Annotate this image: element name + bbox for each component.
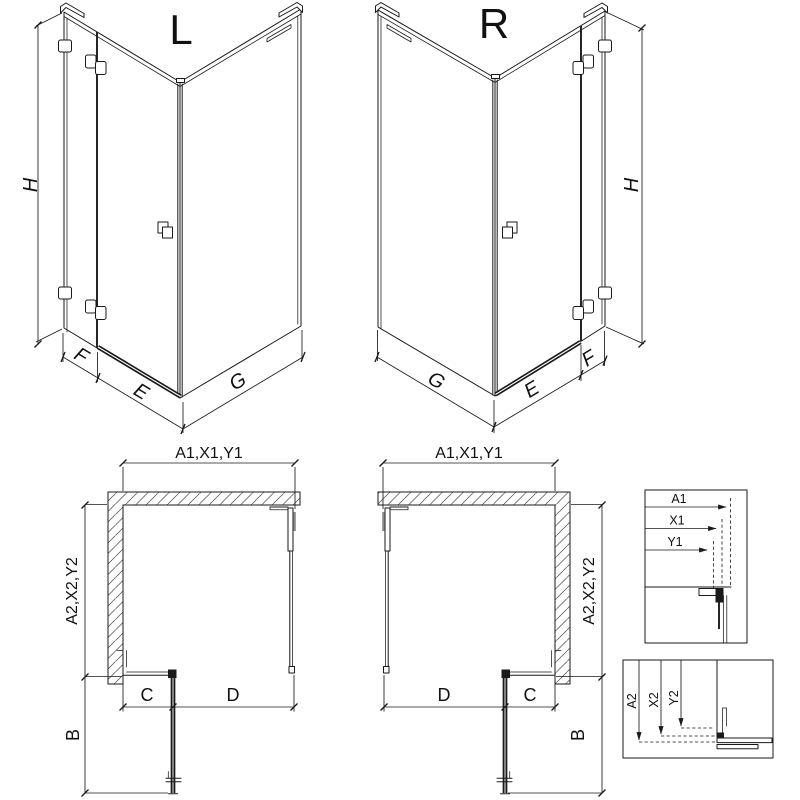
dim-h-left: H xyxy=(20,13,62,348)
wall-profile-top-right xyxy=(584,3,608,18)
detail-box-border xyxy=(645,490,747,643)
door-swing-section xyxy=(166,670,181,794)
dim-g-left: G xyxy=(183,330,305,429)
side-glass-panel xyxy=(378,10,495,396)
dim-b-right-label: B xyxy=(568,729,588,741)
dim-e-left: E xyxy=(98,378,185,434)
variant-label-right: R xyxy=(479,0,509,47)
dim-h-left-label: H xyxy=(20,177,42,192)
dim-a1-chain-right-label: A1,X1,Y1 xyxy=(435,445,503,462)
side-glass-section xyxy=(270,507,295,673)
dim-a1-label: A1 xyxy=(671,492,686,506)
side-glass-section xyxy=(383,507,408,673)
wall-hatch xyxy=(378,492,570,684)
dim-x1-arrow: X1 xyxy=(645,514,722,588)
plan-right-view: A1,X1,Y1 A2,X2,Y2 D C B xyxy=(378,445,606,797)
dim-f-left-label: F xyxy=(70,343,93,369)
dim-f-right-label: F xyxy=(578,345,601,371)
dim-f-right: F xyxy=(578,331,607,381)
wall-brackets xyxy=(59,40,72,299)
dim-d-right-label: D xyxy=(438,685,451,705)
dim-a2-chain-left-label: A2,X2,Y2 xyxy=(64,557,81,625)
dim-x2-label: X2 xyxy=(647,692,661,707)
dim-e-right: E xyxy=(492,375,581,433)
glass-end-block xyxy=(289,667,295,674)
plan-left-view: A1,X1,Y1 A2,X2,Y2 C D B xyxy=(63,445,300,797)
dim-a2-chain-right-label: A2,X2,Y2 xyxy=(581,557,598,625)
door-swing-section xyxy=(497,670,512,794)
dim-a2-label: A2 xyxy=(625,693,639,708)
dim-a1-arrow: A1 xyxy=(645,492,731,587)
dim-c-d-left: C D xyxy=(120,675,298,712)
shower-enclosure-technical-drawing: L xyxy=(0,0,800,800)
dim-b-left-label: B xyxy=(63,729,83,741)
dim-a1-chain-left-label: A1,X1,Y1 xyxy=(175,445,243,462)
dim-c-right-label: C xyxy=(524,685,537,705)
wall-hatch xyxy=(108,492,300,684)
dim-y2-label: Y2 xyxy=(667,690,681,705)
dim-h-right-label: H xyxy=(621,177,643,192)
iso-left-view: L xyxy=(20,3,305,435)
wall-profile-section xyxy=(699,589,727,643)
dim-c-left-label: C xyxy=(141,685,154,705)
threshold-and-wall-profile xyxy=(507,651,561,676)
door-hinges xyxy=(86,55,107,320)
threshold-and-wall-profile xyxy=(117,651,171,676)
dim-g-right: G xyxy=(375,330,494,427)
dim-y1-arrow: Y1 xyxy=(645,535,714,588)
dim-e-left-label: E xyxy=(130,379,153,405)
door-handle xyxy=(158,222,173,238)
dim-f-left: F xyxy=(61,333,100,383)
side-glass-panel xyxy=(180,9,301,398)
detail-width-measure: A1 X1 Y1 xyxy=(645,490,747,643)
dim-y1-label: Y1 xyxy=(667,535,682,549)
detail-depth-measure: A2 X2 Y2 xyxy=(623,660,773,758)
dim-d-c-right: D C xyxy=(381,675,559,712)
dim-y2-arrow: Y2 xyxy=(667,660,714,728)
variant-label-left: L xyxy=(169,6,192,53)
dim-g-right-label: G xyxy=(424,367,449,394)
front-panel-and-door xyxy=(495,11,605,396)
glass-profile-section xyxy=(717,708,772,749)
detail-box-border xyxy=(623,660,773,758)
dim-x2-arrow: X2 xyxy=(647,660,716,736)
front-panel-and-door xyxy=(64,12,180,398)
glass-end-block xyxy=(384,667,390,674)
dim-x1-label: X1 xyxy=(669,514,684,528)
iso-right-view: R xyxy=(375,0,646,433)
door-hinges xyxy=(573,55,594,320)
dim-d-left-label: D xyxy=(227,685,240,705)
door-handle xyxy=(503,222,518,238)
